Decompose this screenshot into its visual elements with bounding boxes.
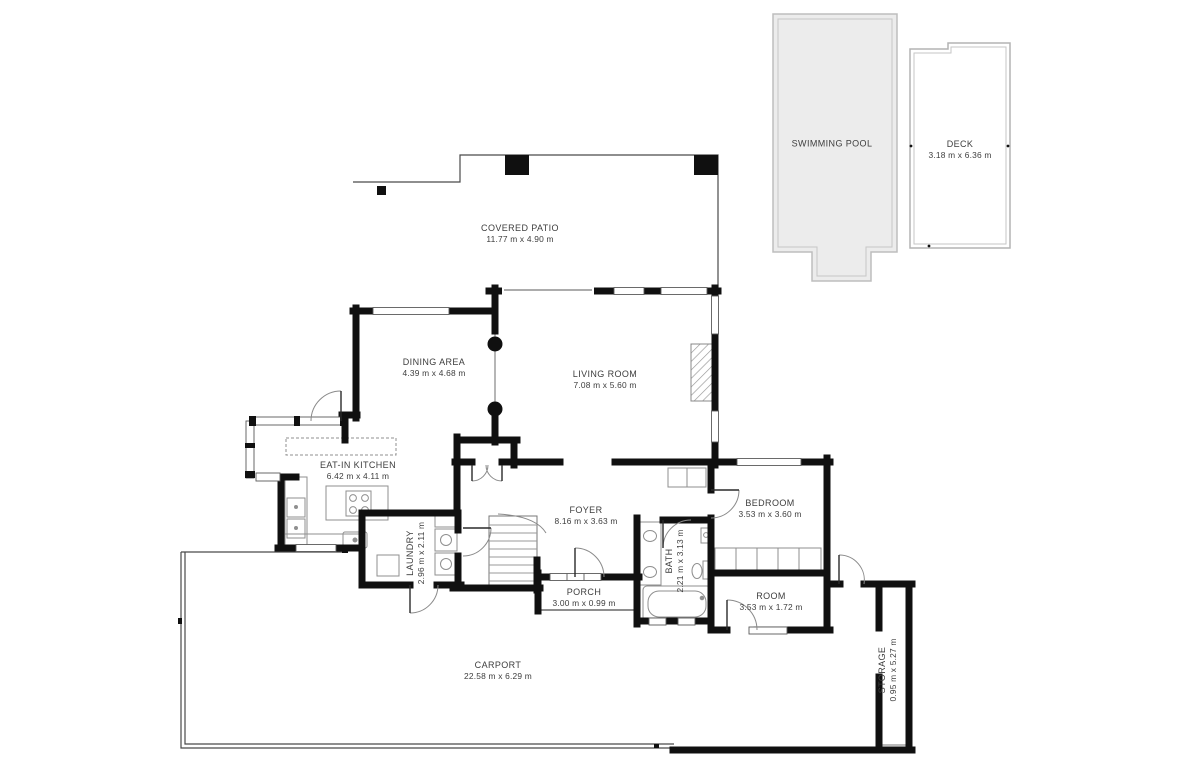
door-arc	[486, 465, 502, 481]
window	[614, 288, 644, 295]
sink-icon	[644, 567, 657, 578]
room-label-living-room: LIVING ROOM 7.08 m x 5.60 m	[573, 369, 637, 391]
closet-icon	[715, 548, 821, 573]
door-arc	[463, 528, 491, 556]
column-icon	[488, 402, 503, 417]
fireplace-icon	[691, 344, 713, 401]
window	[678, 618, 695, 625]
bath-vanity-icon	[640, 522, 661, 585]
room-label-foyer: FOYER 8.16 m x 3.63 m	[554, 505, 617, 527]
window	[296, 545, 336, 552]
door-arc	[410, 585, 438, 613]
sink-icon	[644, 531, 657, 542]
window	[712, 411, 719, 442]
upper-cabinet-icon	[286, 438, 396, 455]
door-arc	[498, 514, 546, 533]
window	[749, 627, 787, 634]
column-icon	[505, 155, 529, 175]
window	[712, 296, 719, 334]
window	[256, 473, 280, 481]
column-icon	[377, 186, 386, 195]
column-icon	[488, 337, 503, 352]
window	[373, 308, 449, 315]
window	[737, 459, 801, 466]
room-label-storage: STORAGE 0.95 m x 5.27 m	[877, 638, 899, 701]
door-arc	[311, 391, 341, 421]
room-label-carport: CARPORT 22.58 m x 6.29 m	[464, 660, 532, 682]
room-label-bath: BATH 2.21 m x 3.13 m	[664, 529, 686, 592]
room-label-laundry: LAUNDRY 2.96 m x 2.11 m	[405, 522, 427, 584]
door-arc	[472, 465, 488, 481]
room-label-covered-patio: COVERED PATIO 11.77 m x 4.90 m	[481, 223, 559, 245]
room-label-swimming-pool: SWIMMING POOL	[792, 139, 873, 150]
window	[661, 288, 707, 295]
door-arc	[839, 555, 864, 584]
room-label-deck: DECK 3.18 m x 6.36 m	[928, 139, 991, 161]
foyer-cabinet-icon	[668, 468, 706, 487]
window	[649, 618, 666, 625]
stairs-icon	[489, 516, 537, 588]
door-arc	[575, 548, 604, 577]
room-label-bedroom: BEDROOM 3.53 m x 3.60 m	[738, 498, 801, 520]
room-label-room: ROOM 3.53 m x 1.72 m	[739, 591, 802, 613]
column-icon	[694, 155, 718, 175]
room-label-porch: PORCH 3.00 m x 0.99 m	[552, 587, 615, 609]
floor-plan-canvas: SWIMMING POOL DECK 3.18 m x 6.36 m COVER…	[0, 0, 1200, 779]
room-label-dining-area: DINING AREA 4.39 m x 4.68 m	[402, 357, 465, 379]
kitchen-cabinet-icon	[285, 477, 307, 551]
room-label-eat-in-kitchen: EAT-IN KITCHEN 6.42 m x 4.11 m	[320, 460, 396, 482]
door-arc	[711, 490, 739, 518]
